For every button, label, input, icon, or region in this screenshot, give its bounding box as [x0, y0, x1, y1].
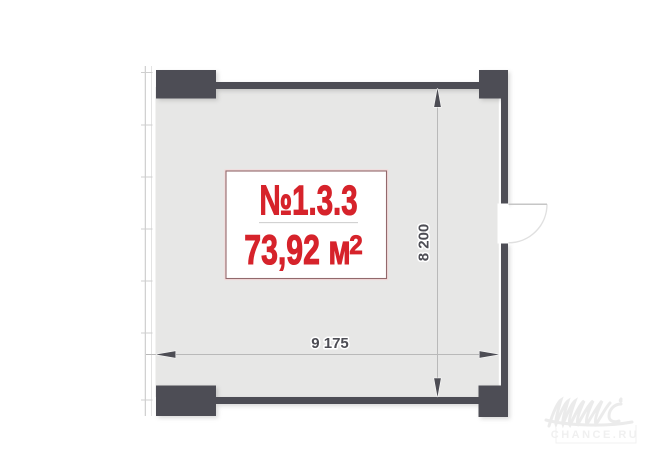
svg-text:№1.3.3: №1.3.3 — [259, 176, 357, 224]
svg-text:9 175: 9 175 — [311, 335, 349, 352]
svg-text:CHANCE.RU: CHANCE.RU — [551, 429, 640, 441]
svg-text:2: 2 — [349, 231, 363, 260]
svg-text:8 200: 8 200 — [416, 224, 433, 262]
svg-text:73,92 м: 73,92 м — [244, 226, 350, 273]
